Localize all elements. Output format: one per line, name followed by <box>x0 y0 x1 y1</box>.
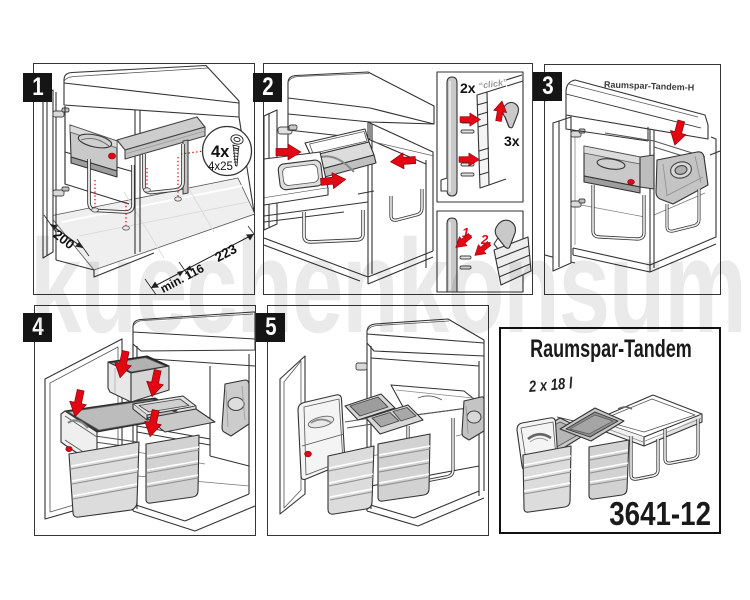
svg-text:Raumspar-Tandem-H: Raumspar-Tandem-H <box>604 79 695 92</box>
svg-text:4x25: 4x25 <box>208 161 233 173</box>
svg-text:223: 223 <box>212 241 239 265</box>
svg-text:4x: 4x <box>211 143 230 161</box>
svg-text:min. 116: min. 116 <box>158 261 207 294</box>
svg-text:3x: 3x <box>504 133 520 149</box>
svg-text:2x: 2x <box>460 80 476 96</box>
